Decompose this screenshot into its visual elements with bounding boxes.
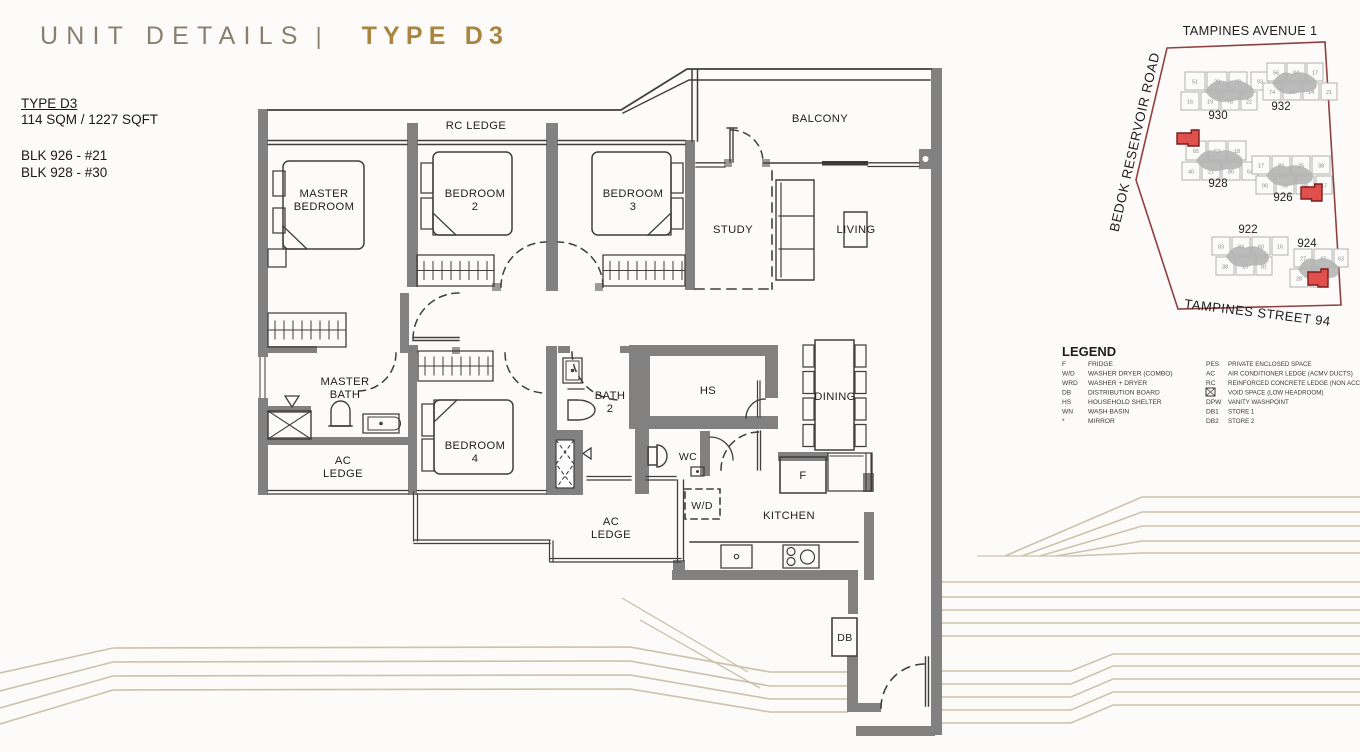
svg-text:924: 924 [1297, 238, 1317, 250]
svg-text:BEDROOM: BEDROOM [294, 201, 355, 213]
svg-text:LEDGE: LEDGE [591, 529, 631, 541]
svg-text:PRIVATE ENCLOSED SPACE: PRIVATE ENCLOSED SPACE [1228, 361, 1312, 368]
svg-text:19: 19 [1207, 100, 1213, 106]
svg-text:WASH BASIN: WASH BASIN [1088, 409, 1129, 416]
svg-text:56: 56 [1273, 71, 1279, 77]
svg-text:DB: DB [837, 632, 852, 644]
svg-text:926: 926 [1273, 192, 1292, 204]
svg-text:93: 93 [1257, 80, 1263, 86]
svg-text:HOUSEHOLD SHELTER: HOUSEHOLD SHELTER [1088, 399, 1162, 406]
svg-text:932: 932 [1271, 101, 1290, 113]
svg-text:928: 928 [1208, 178, 1227, 190]
svg-text:WRD: WRD [1062, 380, 1078, 387]
svg-text:RC LEDGE: RC LEDGE [446, 120, 506, 132]
svg-text:17: 17 [1312, 71, 1318, 77]
svg-text:LEGEND: LEGEND [1062, 344, 1116, 359]
svg-text:21: 21 [1326, 90, 1332, 96]
svg-text:DISTRIBUTION BOARD: DISTRIBUTION BOARD [1088, 390, 1160, 397]
svg-text:3: 3 [630, 201, 637, 213]
svg-text:74: 74 [1269, 90, 1275, 96]
svg-text:MASTER: MASTER [320, 376, 369, 388]
svg-text:BEDROOM: BEDROOM [445, 440, 506, 452]
svg-text:DB1: DB1 [1206, 409, 1219, 416]
svg-text:17: 17 [1258, 164, 1264, 170]
svg-text:4: 4 [472, 453, 479, 465]
svg-text:PES: PES [1206, 361, 1220, 368]
svg-text:BEDOK RESERVOIR ROAD: BEDOK RESERVOIR ROAD [1107, 51, 1163, 233]
svg-text:TAMPINES STREET 94: TAMPINES STREET 94 [1184, 296, 1332, 329]
svg-text:LIVING: LIVING [836, 224, 875, 236]
svg-text:930: 930 [1208, 110, 1227, 122]
svg-text:RC: RC [1206, 380, 1216, 387]
svg-text:STUDY: STUDY [713, 224, 753, 236]
svg-text:81: 81 [1261, 265, 1267, 271]
svg-text:W/D: W/D [1062, 371, 1075, 378]
svg-text:65: 65 [1193, 149, 1199, 155]
svg-text:2: 2 [607, 403, 614, 415]
svg-text:REINFORCED CONCRETE LEDGE (NON: REINFORCED CONCRETE LEDGE (NON ACC.) [1228, 380, 1360, 387]
svg-text:BEDROOM: BEDROOM [603, 188, 664, 200]
svg-text:38: 38 [1318, 164, 1324, 170]
svg-text:BATH: BATH [595, 390, 626, 402]
svg-text:STORE 2: STORE 2 [1228, 418, 1255, 425]
svg-text:STORE 1: STORE 1 [1228, 409, 1255, 416]
svg-text:MASTER: MASTER [299, 188, 348, 200]
svg-text:DB: DB [1062, 390, 1072, 397]
svg-text:BEDROOM: BEDROOM [445, 188, 506, 200]
svg-text:83: 83 [1218, 245, 1224, 251]
svg-text:WASHER DRYER (COMBO): WASHER DRYER (COMBO) [1088, 371, 1173, 378]
svg-text:63: 63 [1338, 257, 1344, 263]
svg-text:WASHER + DRYER: WASHER + DRYER [1088, 380, 1147, 387]
svg-text:AC: AC [335, 455, 351, 467]
svg-text:VOID SPACE (LOW HEADROOM): VOID SPACE (LOW HEADROOM) [1228, 390, 1323, 397]
svg-text:*: * [1062, 418, 1065, 425]
svg-text:FRIDGE: FRIDGE [1088, 361, 1114, 368]
svg-text:51: 51 [1192, 80, 1198, 86]
svg-text:BALCONY: BALCONY [792, 113, 848, 125]
svg-text:VANITY WASHPOINT: VANITY WASHPOINT [1228, 399, 1289, 406]
svg-text:AC: AC [1206, 371, 1215, 378]
svg-text:AIR CONDITIONER LEDGE (ACMV DU: AIR CONDITIONER LEDGE (ACMV DUCTS) [1228, 371, 1353, 378]
svg-text:KITCHEN: KITCHEN [763, 510, 815, 522]
svg-text:DINING: DINING [814, 391, 856, 403]
svg-text:2: 2 [472, 201, 479, 213]
svg-text:922: 922 [1238, 224, 1257, 236]
svg-text:DPW: DPW [1206, 399, 1222, 406]
svg-text:HS: HS [1062, 399, 1072, 406]
svg-text:16: 16 [1187, 100, 1193, 106]
svg-text:TAMPINES AVENUE 1: TAMPINES AVENUE 1 [1183, 23, 1318, 38]
svg-text:HS: HS [700, 385, 716, 397]
svg-text:DB2: DB2 [1206, 418, 1219, 425]
svg-text:16: 16 [1277, 245, 1283, 251]
svg-text:38: 38 [1222, 265, 1228, 271]
svg-text:80: 80 [1228, 170, 1234, 176]
svg-text:AC: AC [603, 516, 619, 528]
svg-text:F: F [1062, 361, 1066, 368]
svg-text:40: 40 [1188, 170, 1194, 176]
svg-text:90: 90 [1262, 184, 1268, 190]
svg-text:28: 28 [1296, 277, 1302, 283]
svg-text:WC: WC [679, 451, 697, 463]
svg-text:LEDGE: LEDGE [323, 468, 363, 480]
svg-text:W/D: W/D [691, 500, 713, 512]
svg-text:F: F [799, 470, 806, 482]
svg-text:22: 22 [1246, 100, 1252, 106]
svg-text:MIRROR: MIRROR [1088, 418, 1115, 425]
svg-text:BATH: BATH [330, 389, 361, 401]
svg-text:WN: WN [1062, 409, 1073, 416]
